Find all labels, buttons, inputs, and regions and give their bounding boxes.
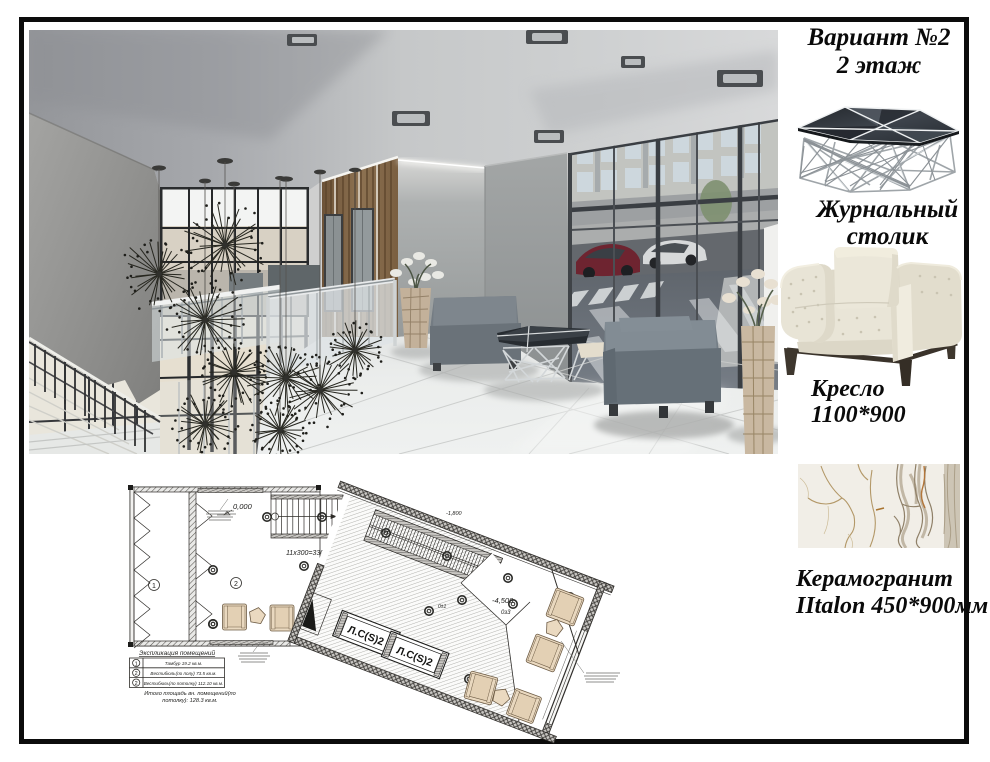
svg-text:Вестибюль(по потолку) 112.10: Вестибюль(по потолку) 112.10 кв.м. [144,681,224,686]
svg-text:2: 2 [234,581,238,588]
svg-text:2: 2 [135,671,138,677]
svg-text:2: 2 [135,681,138,687]
svg-text:0±1: 0±1 [438,604,447,610]
svg-text:1: 1 [135,661,138,667]
svg-text:Вестибюль(по полу) 73.5 кв.м.: Вестибюль(по полу) 73.5 кв.м. [150,671,216,676]
svg-text:потолку): 128.3 кв.м.: потолку): 128.3 кв.м. [162,698,217,704]
svg-text:-1,800: -1,800 [446,511,463,517]
svg-text:Итого площадь вн. помещений(по: Итого площадь вн. помещений(по [144,690,235,697]
svg-text:Тамбур 19.2 кв.м.: Тамбур 19.2 кв.м. [165,661,203,666]
svg-text:1: 1 [152,583,156,590]
svg-text:0,000: 0,000 [233,502,253,511]
svg-text:Экспликация помещений: Экспликация помещений [139,649,216,657]
svg-text:0з3: 0з3 [501,610,511,616]
